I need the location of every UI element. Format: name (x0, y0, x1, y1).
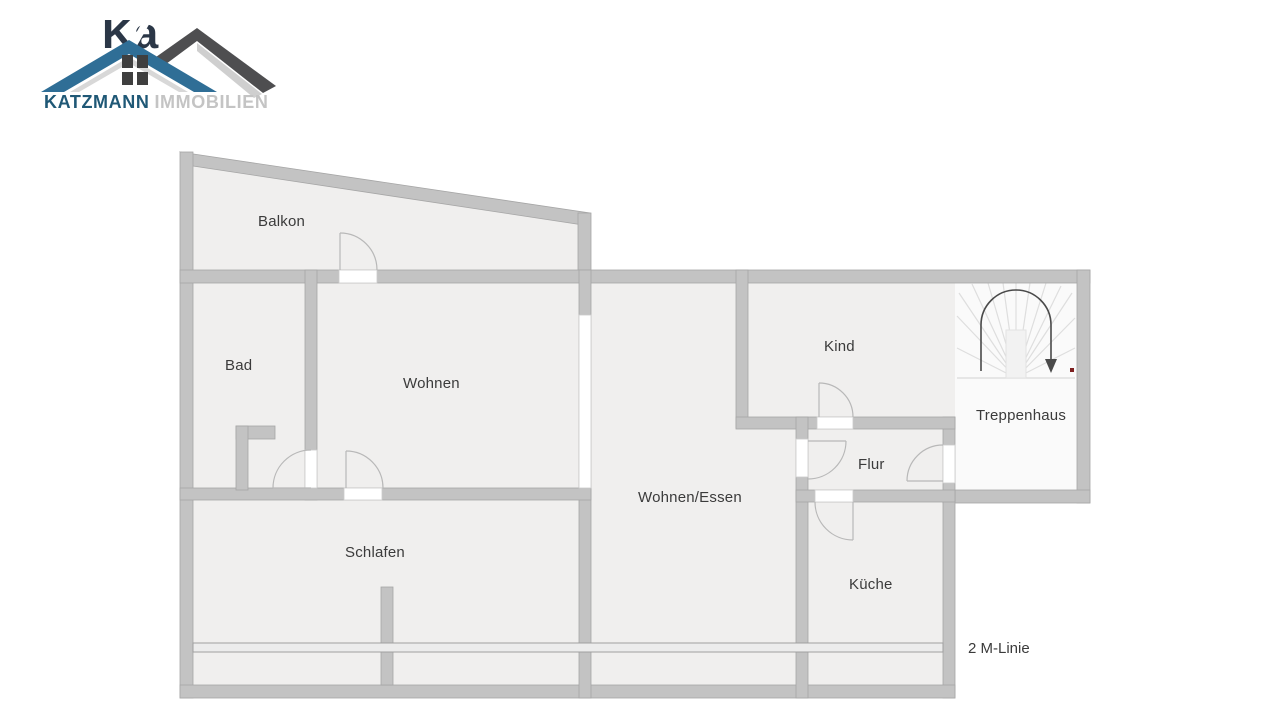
room-label-wohnen: Wohnen (403, 375, 460, 392)
kind-door-opening (817, 417, 853, 429)
red-marker (1070, 368, 1074, 372)
two-meter-line-label: 2 M-Linie (968, 640, 1030, 657)
room-label-bad: Bad (225, 357, 252, 374)
two-meter-line (193, 643, 943, 652)
balcony-door-opening (339, 270, 377, 283)
stair-newel-post (1006, 330, 1026, 378)
room-label-wohnen-essen: Wohnen/Essen (638, 489, 742, 506)
flur-west-door-opening (796, 439, 808, 477)
room-label-balkon: Balkon (258, 213, 305, 230)
kueche-door-opening (815, 490, 853, 502)
flur-east-door-opening (943, 445, 955, 483)
glazed-opening (579, 315, 591, 488)
bad-door-opening (305, 450, 317, 488)
room-label-kind: Kind (824, 338, 855, 355)
company-logo: Ka KATZMANNIMMOBILIEN (38, 4, 288, 119)
wohnen-door-opening (344, 488, 382, 500)
room-label-treppenhaus: Treppenhaus (976, 407, 1066, 424)
room-label-schlafen: Schlafen (345, 544, 405, 561)
room-label-flur: Flur (858, 456, 885, 473)
brand-name-primary: KATZMANN (44, 92, 149, 112)
room-label-kueche: Küche (849, 576, 893, 593)
logo-wordmark: KATZMANNIMMOBILIEN (44, 92, 268, 113)
brand-name-secondary: IMMOBILIEN (154, 92, 268, 112)
